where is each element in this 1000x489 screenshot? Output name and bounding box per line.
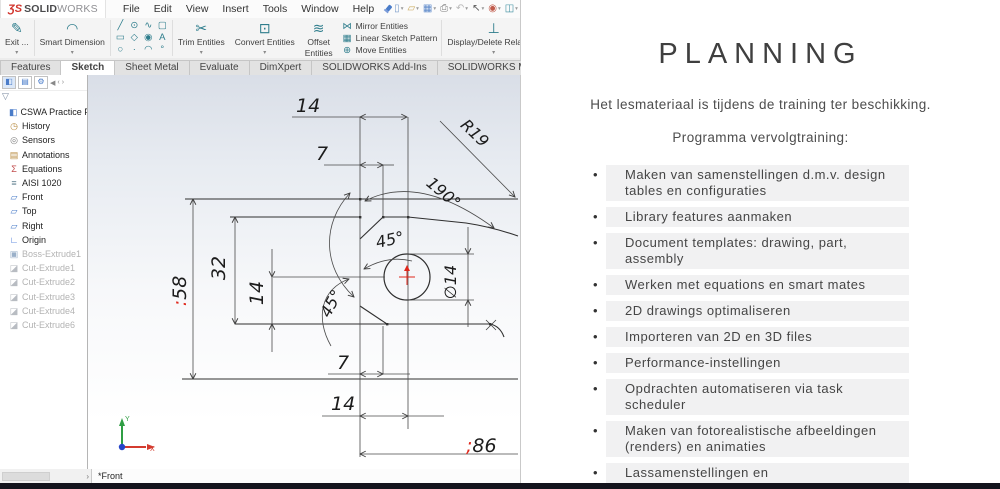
sketch-entity-icon[interactable]: ∿: [142, 20, 155, 32]
trim-entities-icon: ✂: [195, 20, 207, 36]
planning-item-text: Opdrachten automatiseren via task schedu…: [606, 379, 909, 415]
sketch-points: [359, 198, 491, 325]
feature-icon: [9, 150, 19, 160]
planning-item-text: Maken van fotorealistische afbeeldingen …: [606, 421, 909, 457]
axis-y-label: Y: [125, 416, 130, 423]
menu-item[interactable]: View: [179, 3, 216, 15]
bullet-icon: [593, 327, 606, 344]
sketch-canvas[interactable]: 14 7 R19 190° 45° 32 14 :58 45° ∅14 7 14…: [88, 75, 520, 469]
sketch-entity-icon[interactable]: ╱: [114, 20, 127, 32]
commandmanager-tab[interactable]: Sheet Metal: [114, 60, 189, 75]
quick-toolbar-icon[interactable]: ⎙▾: [439, 3, 453, 15]
feature-icon: [9, 206, 19, 216]
menu-list: FileEditViewInsertToolsWindowHelp: [116, 3, 381, 15]
pattern-tool-button[interactable]: ⋈ Mirror Entities: [342, 21, 438, 32]
dimension-86[interactable]: ;86: [466, 435, 497, 457]
quick-toolbar-icon[interactable]: ▯▾: [393, 3, 404, 15]
sketch-entity-icon[interactable]: ○: [114, 44, 127, 56]
planning-list-item: Importeren van 2D en 3D files: [593, 327, 909, 347]
exit-sketch-icon: ✎: [11, 20, 23, 36]
planning-list-item: Lassamenstellingen en plooiwerkonderdele…: [593, 463, 909, 483]
planning-list-item: Document templates: drawing, part, assem…: [593, 233, 909, 269]
screen: ƷS SOLIDWORKS FileEditViewInsertToolsWin…: [0, 0, 1000, 489]
dimension-radius[interactable]: R19: [457, 115, 493, 151]
planning-item-text: 2D drawings optimaliseren: [606, 301, 909, 321]
logo-mark-icon: ƷS: [8, 3, 22, 15]
pattern-tool-button[interactable]: ▦ Linear Sketch Pattern: [342, 33, 438, 44]
feature-tree-label: Sensors: [22, 135, 55, 145]
offset-entities-icon: ≋: [313, 20, 325, 36]
feature-tree-item[interactable]: History: [0, 119, 87, 133]
menu-item[interactable]: Window: [294, 3, 345, 15]
planning-title: PLANNING: [521, 38, 1000, 71]
feature-icon: [9, 277, 19, 287]
orientation-label: *Front: [92, 469, 123, 483]
bullet-icon: [593, 353, 606, 370]
bullet-icon: [593, 301, 606, 318]
feature-tree-item[interactable]: Equations: [0, 162, 87, 176]
planning-list-item: 2D drawings optimaliseren: [593, 301, 909, 321]
smart-dimension-icon: ◠: [66, 20, 78, 36]
feature-icon: [9, 178, 19, 188]
exit-sketch-button[interactable]: ✎ Exit ... ▾: [0, 18, 34, 58]
trim-entities-button[interactable]: ✂ Trim Entities ▾: [173, 18, 230, 58]
commandmanager-tab[interactable]: SOLIDWORKS Add-Ins: [311, 60, 437, 75]
feature-icon: [9, 221, 19, 231]
bullet-icon: [593, 233, 606, 250]
tree-filter-icon[interactable]: ▽: [0, 91, 87, 103]
feature-tree-label: Annotations: [22, 150, 70, 160]
dimension-lines: [193, 117, 518, 454]
bullet-icon: [593, 165, 606, 182]
pattern-tool-icon: ⋈: [342, 21, 353, 32]
display-delete-relations-button[interactable]: ⊥ Display/Delete Relations ▾: [442, 18, 520, 58]
planning-panel: PLANNING Het lesmateriaal is tijdens de …: [521, 0, 1000, 483]
feature-tree-item[interactable]: Annotations: [0, 148, 87, 162]
coordinate-triad: Y X: [119, 416, 155, 453]
dimension-bottom-7[interactable]: 7: [337, 352, 349, 374]
feature-icon: [9, 135, 19, 145]
sketch-entity-icon[interactable]: A: [156, 32, 169, 44]
feature-tree-label: Cut-Extrude2: [22, 277, 75, 287]
feature-icon: [9, 107, 18, 117]
feature-tree-label: Boss-Extrude1: [22, 249, 81, 259]
dimension-left-14[interactable]: 14: [246, 281, 268, 305]
tab-list: FeaturesSketchSheet MetalEvaluateDimXper…: [0, 60, 551, 75]
dimension-angle-45-lower[interactable]: 45°: [316, 286, 346, 320]
display-delete-relations-icon: ⊥: [488, 20, 500, 36]
planning-item-text: Werken met equations en smart mates: [606, 275, 909, 295]
feature-manager-panel: ◧ ▤ ⚙ ◀ ‹ › ▽ CSWA Practice Part: [0, 75, 88, 469]
feature-tree-label: Top: [22, 206, 37, 216]
feature-tree-item[interactable]: Sensors: [0, 133, 87, 147]
commandmanager-tab[interactable]: DimXpert: [249, 60, 313, 75]
quick-toolbar-icon[interactable]: ◉▾: [487, 3, 502, 15]
feature-tree-item[interactable]: Top: [0, 204, 87, 218]
bullet-icon: [593, 275, 606, 292]
planning-list-item: Maken van samenstellingen d.m.v. design …: [593, 165, 909, 201]
sketch-entity-icon[interactable]: ⊙: [128, 20, 141, 32]
feature-tree-item[interactable]: CSWA Practice Part: [0, 105, 87, 119]
hole-center-mark: [399, 265, 415, 285]
feature-tree-label: Origin: [22, 235, 46, 245]
commandmanager-tab[interactable]: Evaluate: [189, 60, 250, 75]
propertymanager-tab[interactable]: ▤: [18, 76, 32, 89]
status-row: › *Front: [0, 469, 520, 483]
feature-tree: CSWA Practice Part History Sensors: [0, 103, 87, 332]
planning-item-text: Maken van samenstellingen d.m.v. design …: [606, 165, 909, 201]
commandmanager-tabs: FeaturesSketchSheet MetalEvaluateDimXper…: [0, 58, 520, 76]
feature-icon: [9, 320, 19, 330]
quick-toolbar: ▯▾ ▱▾ ▦▾ ⎙▾ ↶▾: [393, 3, 536, 15]
feature-icon: [9, 249, 19, 259]
bullet-icon: [593, 379, 606, 396]
feature-tree-item[interactable]: Boss-Extrude1: [0, 247, 87, 261]
sketch-entity-icon[interactable]: ▢: [156, 20, 169, 32]
quick-toolbar-icon[interactable]: ↖▾: [471, 3, 485, 15]
feature-tree-item[interactable]: Front: [0, 190, 87, 204]
taskbar-strip: [0, 483, 1000, 489]
menubar: ƷS SOLIDWORKS FileEditViewInsertToolsWin…: [0, 0, 520, 19]
sketch-entity-icon[interactable]: ◠: [142, 44, 155, 56]
menu-item[interactable]: Insert: [215, 3, 255, 15]
feature-icon: [9, 263, 19, 273]
planning-item-text: Library features aanmaken: [606, 207, 909, 227]
sketch-entity-icon[interactable]: ◉: [142, 32, 155, 44]
planning-item-text: Lassamenstellingen en plooiwerkonderdele…: [606, 463, 909, 483]
sketch-entity-icon[interactable]: ◇: [128, 32, 141, 44]
planning-subtitle: Programma vervolgtraining:: [521, 130, 1000, 145]
feature-tree-label: Front: [22, 192, 43, 202]
commandmanager-tab[interactable]: Features: [0, 60, 61, 75]
feature-tree-item[interactable]: AISI 1020: [0, 176, 87, 190]
feature-tree-label: History: [22, 121, 50, 131]
feature-icon: [9, 192, 19, 202]
pattern-tools-stack: ⋈ Mirror Entities ▦ Linear Sketch Patter…: [338, 18, 442, 58]
feature-tree-item[interactable]: Cut-Extrude1: [0, 261, 87, 275]
dimension-angle-190[interactable]: 190°: [423, 173, 465, 212]
bullet-icon: [593, 421, 606, 438]
offset-entities-button[interactable]: ≋ Offset Entities: [300, 18, 338, 58]
planning-list-item: Werken met equations en smart mates: [593, 275, 909, 295]
sketch-entity-icon[interactable]: ·: [128, 44, 141, 56]
command-manager: ✎ Exit ... ▾ ◠ Smart Dimension ▾ ╱⊙∿▢▭◇◉…: [0, 18, 520, 59]
bullet-icon: [593, 463, 606, 480]
sketch-entities-grid: ╱⊙∿▢▭◇◉A○·◠°: [111, 18, 172, 58]
feature-tree-item[interactable]: Cut-Extrude3: [0, 289, 87, 303]
feature-tree-label: Equations: [22, 164, 62, 174]
menu-item[interactable]: Help: [346, 3, 382, 15]
panel-arrow-left-icon[interactable]: ‹: [57, 79, 59, 86]
planning-list: Maken van samenstellingen d.m.v. design …: [593, 165, 909, 483]
pattern-tool-button[interactable]: ⊕ Move Entities: [342, 45, 438, 56]
solidworks-logo: ƷS SOLIDWORKS: [0, 0, 106, 19]
featuremanager-tree-tab[interactable]: ◧: [2, 76, 16, 89]
quick-toolbar-icon[interactable]: ▱▾: [406, 3, 419, 15]
dimension-top-width[interactable]: 14: [296, 95, 320, 117]
dimension-height-32[interactable]: 32: [208, 256, 230, 280]
feature-tree-label: Cut-Extrude3: [22, 292, 75, 302]
menu-item[interactable]: File: [116, 3, 147, 15]
dimension-angle-45-upper[interactable]: 45°: [374, 227, 406, 251]
smart-dimension-button[interactable]: ◠ Smart Dimension ▾: [35, 18, 110, 58]
scrollbar-arrow-icon[interactable]: ›: [86, 472, 89, 481]
feature-tree-item[interactable]: Cut-Extrude4: [0, 304, 87, 318]
feature-tree-label: Cut-Extrude6: [22, 320, 75, 330]
feature-tree-label: CSWA Practice Part: [21, 107, 88, 117]
commandmanager-tab[interactable]: Sketch: [60, 60, 115, 75]
feature-tree-item[interactable]: Right: [0, 219, 87, 233]
pattern-tool-icon: ▦: [342, 33, 353, 44]
sketch-entity-icon[interactable]: °: [156, 44, 169, 56]
quick-toolbar-icon[interactable]: ▦▾: [422, 3, 437, 15]
convert-entities-button[interactable]: ⊡ Convert Entities ▾: [230, 18, 300, 58]
dimension-top-offset[interactable]: 7: [316, 143, 328, 165]
planning-list-item: Performance-instellingen: [593, 353, 909, 373]
menu-item[interactable]: Edit: [147, 3, 179, 15]
solidworks-window: ƷS SOLIDWORKS FileEditViewInsertToolsWin…: [0, 0, 521, 483]
feature-icon: [9, 235, 19, 245]
dimension-58[interactable]: :58: [169, 276, 191, 307]
configurationmanager-tab[interactable]: ⚙: [34, 76, 48, 89]
feature-tree-label: Right: [22, 221, 43, 231]
pattern-tool-icon: ⊕: [342, 45, 353, 56]
panel-collapse-arrow-icon[interactable]: ◀: [50, 79, 55, 87]
feature-icon: [9, 164, 19, 174]
bullet-icon: [593, 207, 606, 224]
planning-list-item: Opdrachten automatiseren via task schedu…: [593, 379, 909, 415]
feature-tree-label: Cut-Extrude4: [22, 306, 75, 316]
graphics-viewport[interactable]: 14 7 R19 190° 45° 32 14 :58 45° ∅14 7 14…: [88, 75, 520, 469]
dimension-bottom-14[interactable]: 14: [331, 393, 355, 415]
feature-icon: [9, 292, 19, 302]
sketch-entity-icon[interactable]: ▭: [114, 32, 127, 44]
feature-tree-item[interactable]: Cut-Extrude6: [0, 318, 87, 332]
planning-item-text: Document templates: drawing, part, assem…: [606, 233, 909, 269]
dimension-hole-diameter[interactable]: ∅14: [441, 265, 460, 299]
tree-scrollbar[interactable]: ›: [0, 469, 92, 483]
planning-intro: Het lesmateriaal is tijdens de training …: [521, 97, 1000, 112]
feature-tree-label: Cut-Extrude1: [22, 263, 75, 273]
scrollbar-thumb[interactable]: [2, 472, 50, 481]
convert-entities-icon: ⊡: [259, 20, 271, 36]
quick-toolbar-icon[interactable]: ◫▾: [504, 3, 519, 15]
panel-arrow-right-icon[interactable]: ›: [62, 79, 64, 86]
quick-toolbar-icon[interactable]: ↶▾: [455, 3, 469, 15]
feature-tree-item[interactable]: Cut-Extrude2: [0, 275, 87, 289]
feature-tree-label: AISI 1020: [22, 178, 62, 188]
feature-tree-item[interactable]: Origin: [0, 233, 87, 247]
axis-x-label: X: [150, 446, 155, 453]
planning-list-item: Maken van fotorealistische afbeeldingen …: [593, 421, 909, 457]
menu-item[interactable]: Tools: [256, 3, 295, 15]
planning-item-text: Performance-instellingen: [606, 353, 909, 373]
planning-list-item: Library features aanmaken: [593, 207, 909, 227]
feature-icon: [9, 306, 19, 316]
main-area: ◧ ▤ ⚙ ◀ ‹ › ▽ CSWA Practice Part: [0, 75, 520, 469]
feature-icon: [9, 121, 19, 131]
planning-item-text: Importeren van 2D en 3D files: [606, 327, 909, 347]
feature-manager-tabs: ◧ ▤ ⚙ ◀ ‹ ›: [0, 75, 87, 91]
